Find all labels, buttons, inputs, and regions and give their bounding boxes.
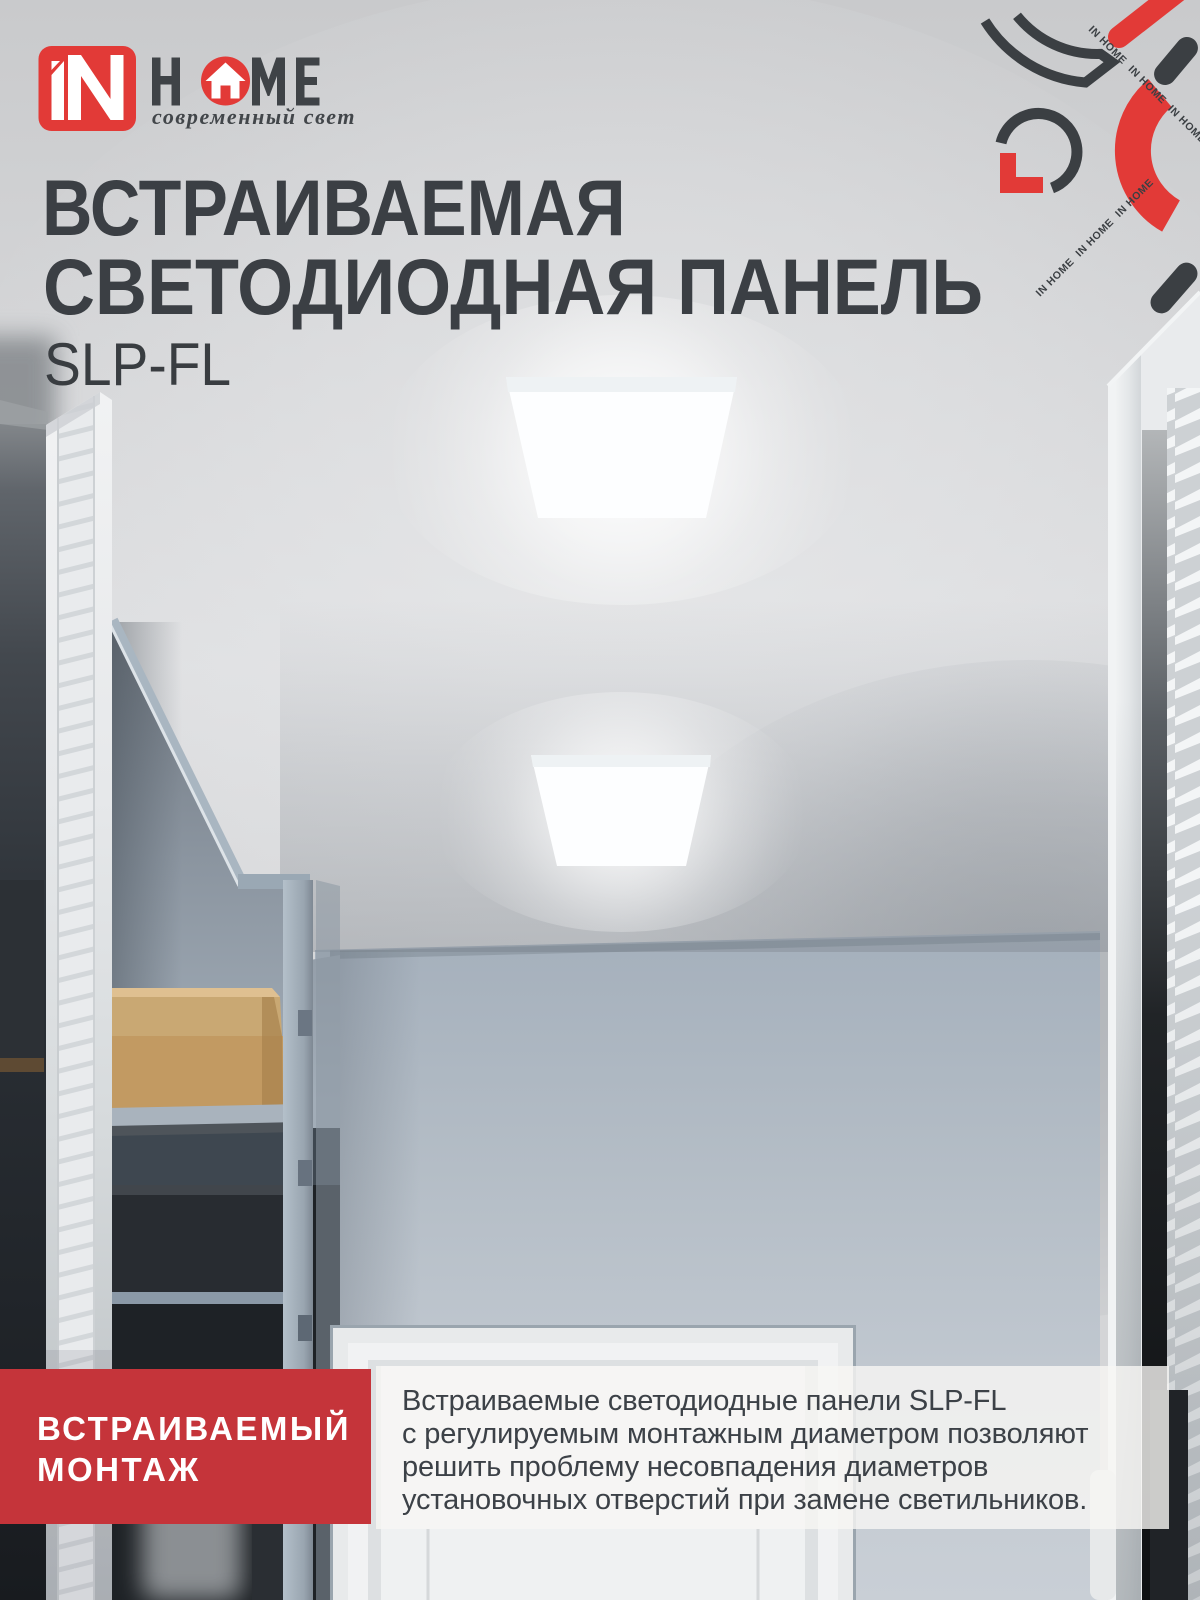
svg-text:современный свет: современный свет: [152, 104, 356, 129]
svg-text:IN HOME IN HOME IN HOME: IN HOME IN HOME IN HOME: [1034, 176, 1157, 299]
